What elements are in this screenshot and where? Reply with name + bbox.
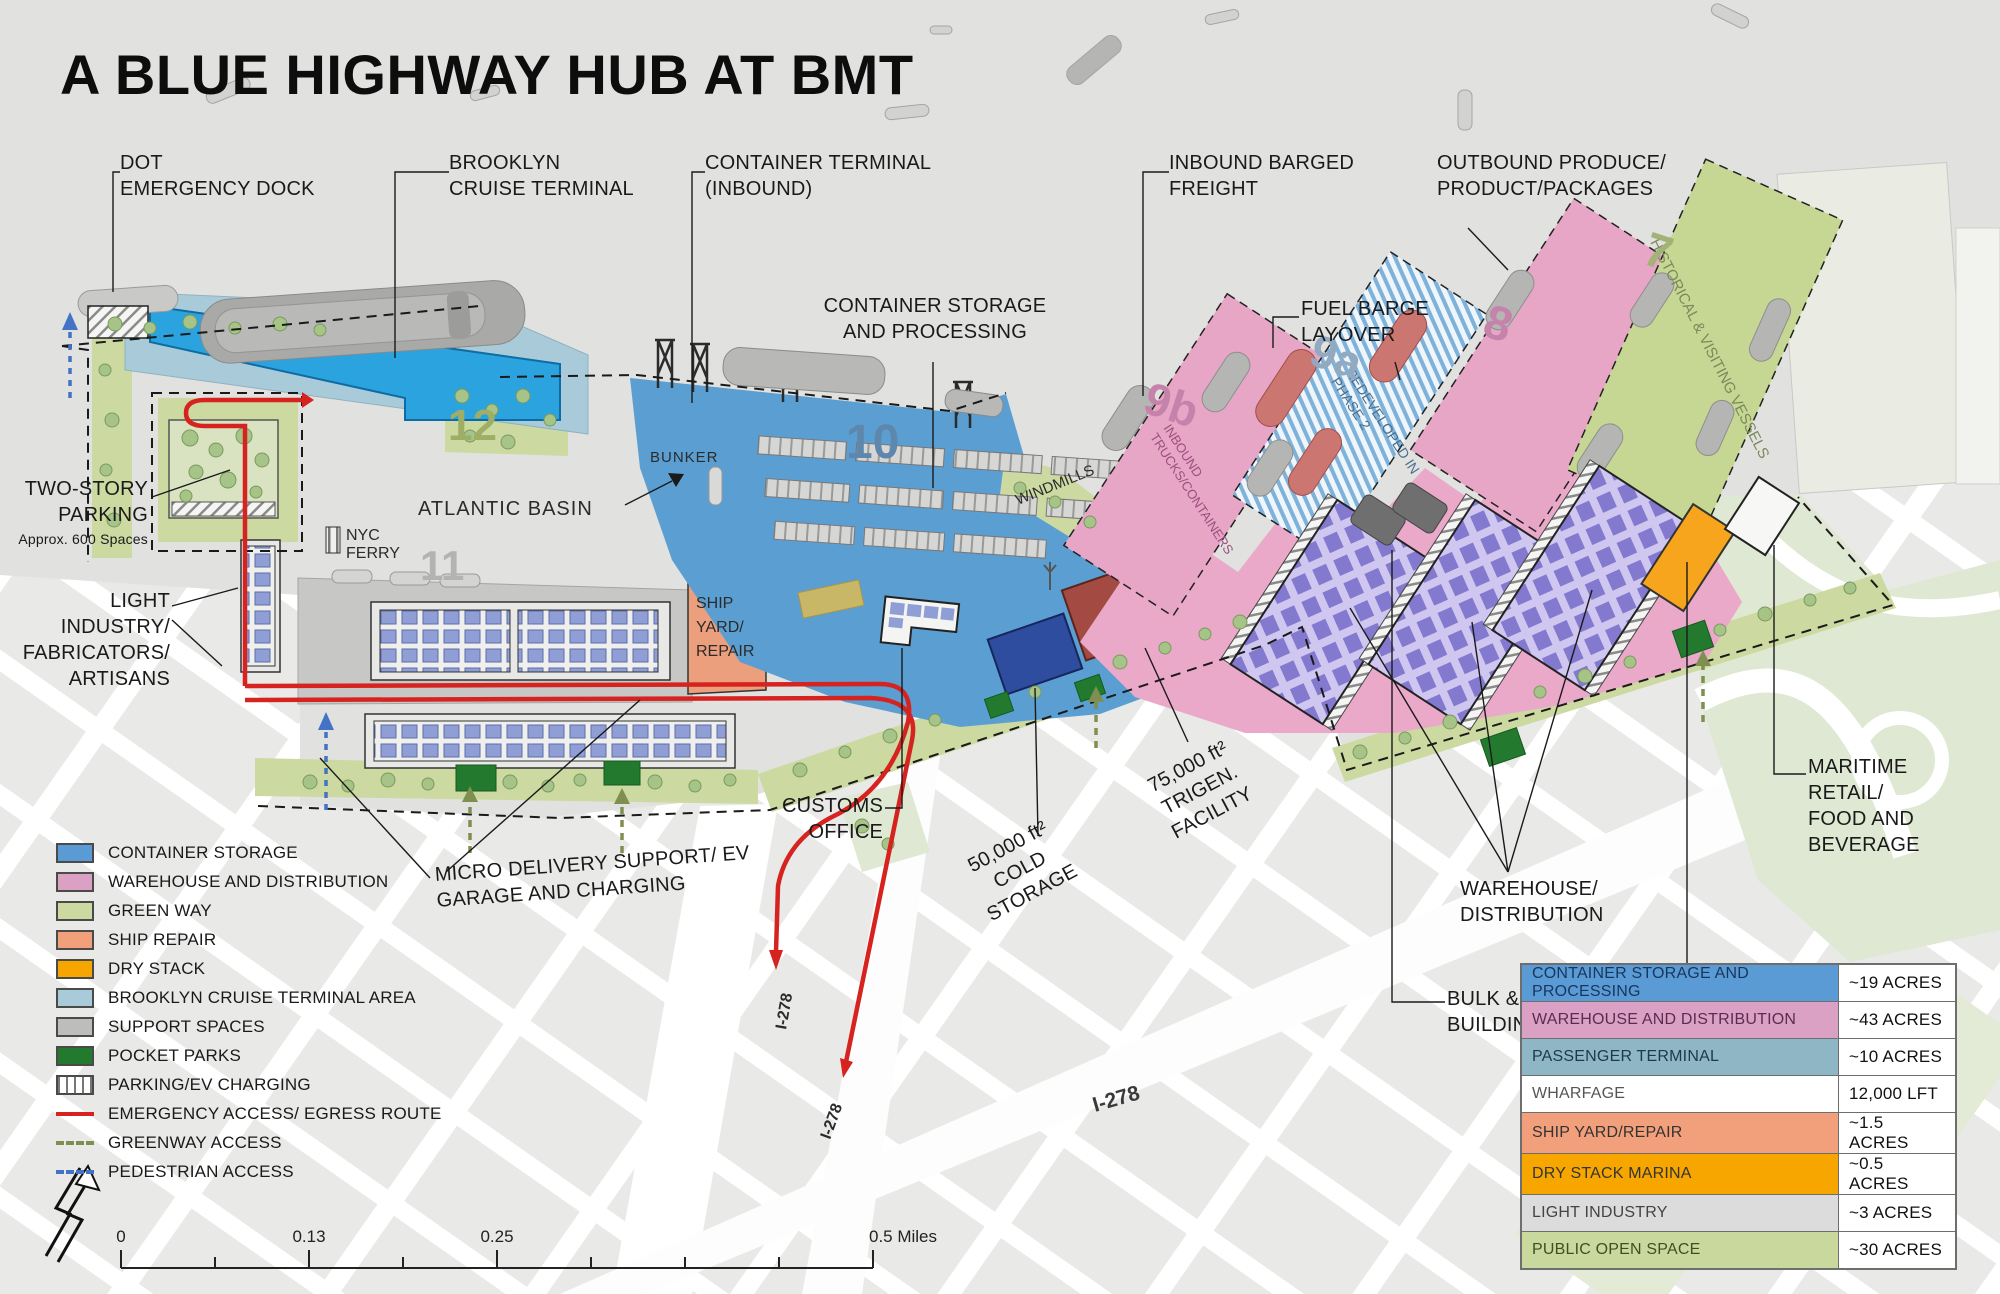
table-row: CONTAINER STORAGE AND PROCESSING~19 ACRE…	[1521, 964, 1956, 1002]
svg-text:YARD/: YARD/	[696, 619, 744, 636]
site-plan-map: ATLANTIC BASIN BUNKER WINDMILLS NYC FERR…	[0, 0, 2000, 1294]
svg-text:0: 0	[116, 1227, 125, 1246]
legend-swatch-ship-repair	[56, 930, 94, 950]
legend-swatch-dry-stack	[56, 959, 94, 979]
svg-text:0.25: 0.25	[480, 1227, 513, 1246]
zone-12: 12	[448, 401, 497, 450]
legend-item: GREEN WAY	[56, 896, 441, 925]
callout-fuel-barge: FUEL BARGE LAYOVER	[1301, 296, 1429, 348]
legend-item: DRY STACK	[56, 954, 441, 983]
legend-swatch-cruise-area	[56, 988, 94, 1008]
callout-two-story-parking: TWO-STORY PARKING	[18, 476, 148, 528]
legend-item: POCKET PARKS	[56, 1041, 441, 1070]
zone-11: 11	[420, 542, 464, 589]
page-title: A BLUE HIGHWAY HUB AT BMT	[60, 42, 914, 107]
callout-outbound-produce: OUTBOUND PRODUCE/ PRODUCT/PACKAGES	[1437, 150, 1666, 202]
callout-warehouse-distribution: WAREHOUSE/ DISTRIBUTION	[1460, 876, 1604, 928]
legend: CONTAINER STORAGE WAREHOUSE AND DISTRIBU…	[56, 838, 441, 1186]
legend-line-pedestrian-access	[56, 1170, 94, 1174]
legend-item: SUPPORT SPACES	[56, 1012, 441, 1041]
callout-container-terminal: CONTAINER TERMINAL (INBOUND)	[705, 150, 931, 202]
svg-text:0.5 Miles: 0.5 Miles	[869, 1227, 937, 1246]
legend-swatch-warehouse	[56, 872, 94, 892]
legend-swatch-container-storage	[56, 843, 94, 863]
two-story-parking-structure	[169, 420, 278, 518]
legend-item: GREENWAY ACCESS	[56, 1128, 441, 1157]
legend-item: PEDESTRIAN ACCESS	[56, 1157, 441, 1186]
legend-item: CONTAINER STORAGE	[56, 838, 441, 867]
callout-inbound-freight: INBOUND BARGED FREIGHT	[1169, 150, 1354, 202]
legend-swatch-parking-ev	[56, 1075, 94, 1095]
table-row: PASSENGER TERMINAL~10 ACRES	[1521, 1039, 1956, 1076]
legend-swatch-pocket-parks	[56, 1046, 94, 1066]
legend-line-greenway-access	[56, 1141, 94, 1145]
legend-swatch-support	[56, 1017, 94, 1037]
callout-maritime-retail: MARITIME RETAIL/ FOOD AND BEVERAGE	[1808, 754, 1920, 858]
table-row: PUBLIC OPEN SPACE~30 ACRES	[1521, 1232, 1956, 1270]
parking-note: Approx. 600 Spaces	[18, 530, 148, 548]
nyc-ferry-dock	[326, 527, 340, 553]
legend-swatch-greenway	[56, 901, 94, 921]
svg-text:0.13: 0.13	[292, 1227, 325, 1246]
legend-item: SHIP REPAIR	[56, 925, 441, 954]
zone-10: 10	[846, 416, 899, 469]
callout-container-storage: CONTAINER STORAGE AND PROCESSING	[824, 293, 1047, 345]
callout-light-industry: LIGHT INDUSTRY/ FABRICATORS/ ARTISANS	[0, 588, 170, 692]
table-row: SHIP YARD/REPAIR~1.5 ACRES	[1521, 1113, 1956, 1154]
table-row: LIGHT INDUSTRY~3 ACRES	[1521, 1195, 1956, 1232]
callout-customs-office: CUSTOMS OFFICE	[760, 793, 883, 845]
callout-dot-dock: DOT EMERGENCY DOCK	[120, 150, 315, 202]
table-row: WAREHOUSE AND DISTRIBUTION~43 ACRES	[1521, 1002, 1956, 1039]
svg-text:FERRY: FERRY	[346, 545, 400, 562]
table-row: DRY STACK MARINA~0.5 ACRES	[1521, 1154, 1956, 1195]
svg-text:SHIP: SHIP	[696, 595, 733, 612]
atlantic-basin-label: ATLANTIC BASIN	[418, 498, 593, 520]
legend-item: EMERGENCY ACCESS/ EGRESS ROUTE	[56, 1099, 441, 1128]
legend-item: BROOKLYN CRUISE TERMINAL AREA	[56, 983, 441, 1012]
program-area-table: CONTAINER STORAGE AND PROCESSING~19 ACRE…	[1520, 963, 1957, 1270]
svg-text:REPAIR: REPAIR	[696, 643, 754, 660]
bunker-label: BUNKER	[650, 449, 719, 466]
callout-cruise-terminal: BROOKLYN CRUISE TERMINAL	[449, 150, 634, 202]
legend-item: PARKING/EV CHARGING	[56, 1070, 441, 1099]
table-row: WHARFAGE12,000 LFT	[1521, 1076, 1956, 1113]
svg-text:NYC: NYC	[346, 527, 380, 544]
legend-line-emergency	[56, 1112, 94, 1116]
legend-item: WAREHOUSE AND DISTRIBUTION	[56, 867, 441, 896]
bunker-berth	[709, 467, 722, 505]
